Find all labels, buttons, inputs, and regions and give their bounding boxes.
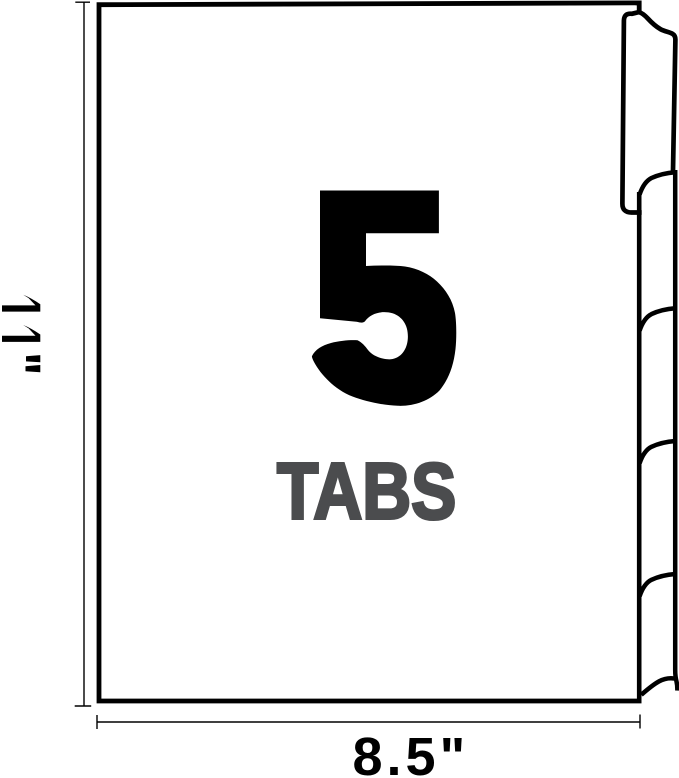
svg-text:8.5": 8.5"	[353, 727, 470, 778]
svg-text:TABS: TABS	[277, 446, 456, 535]
